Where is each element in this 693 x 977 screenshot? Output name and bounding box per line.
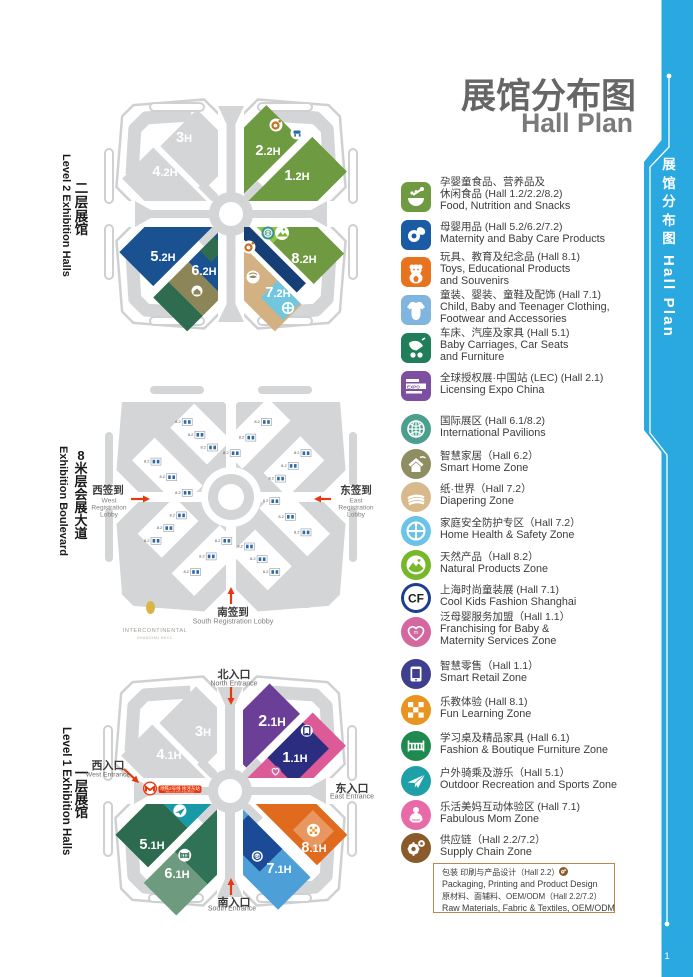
svg-text:m: m	[414, 630, 418, 636]
svg-text:Metro Line 2 East Xujing Stat: Metro Line 2 East Xujing Station	[166, 791, 195, 794]
svg-text:EXPO: EXPO	[407, 384, 420, 389]
svg-text:CF: CF	[408, 592, 424, 606]
